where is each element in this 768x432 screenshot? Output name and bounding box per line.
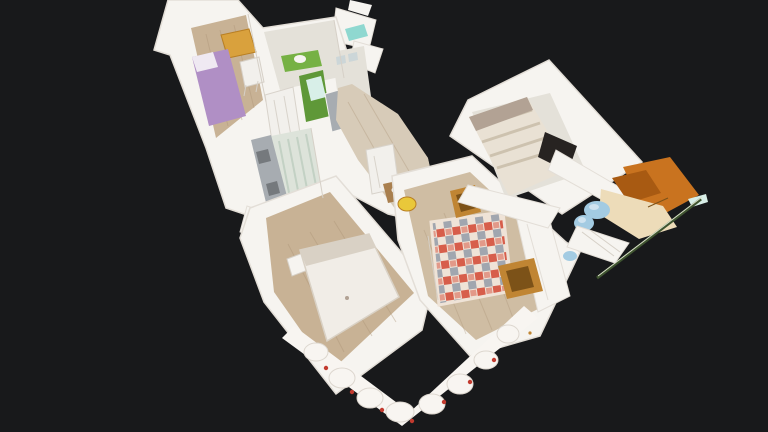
curtain-trim-dot: [442, 400, 446, 404]
floor-decor-speck: [528, 331, 531, 334]
curtain-trim-dot: [324, 366, 328, 370]
curtain-fold: [386, 402, 414, 422]
white-desk: [240, 57, 264, 87]
curtain-fold: [304, 343, 328, 361]
dollhouse-3d-view[interactable]: [0, 0, 768, 432]
bed-detail: [345, 296, 349, 300]
patchwork-sofa: [431, 212, 512, 305]
blanket-highlight: [578, 217, 586, 223]
yellow-stool: [398, 197, 416, 211]
curtain-fold: [497, 325, 519, 343]
curtain-trim-dot: [410, 419, 414, 423]
blue-chair: [563, 251, 577, 261]
curtain-trim-dot: [492, 358, 496, 362]
curtain-fold: [419, 394, 445, 414]
blanket-highlight: [589, 204, 599, 210]
curtain-trim-dot: [380, 408, 384, 412]
sink: [294, 55, 306, 63]
viewer-stage: [0, 0, 768, 432]
curtain-fold: [329, 368, 355, 388]
curtain-trim-dot: [350, 390, 354, 394]
curtain-trim-dot: [468, 380, 472, 384]
curtain-fold: [357, 388, 383, 408]
